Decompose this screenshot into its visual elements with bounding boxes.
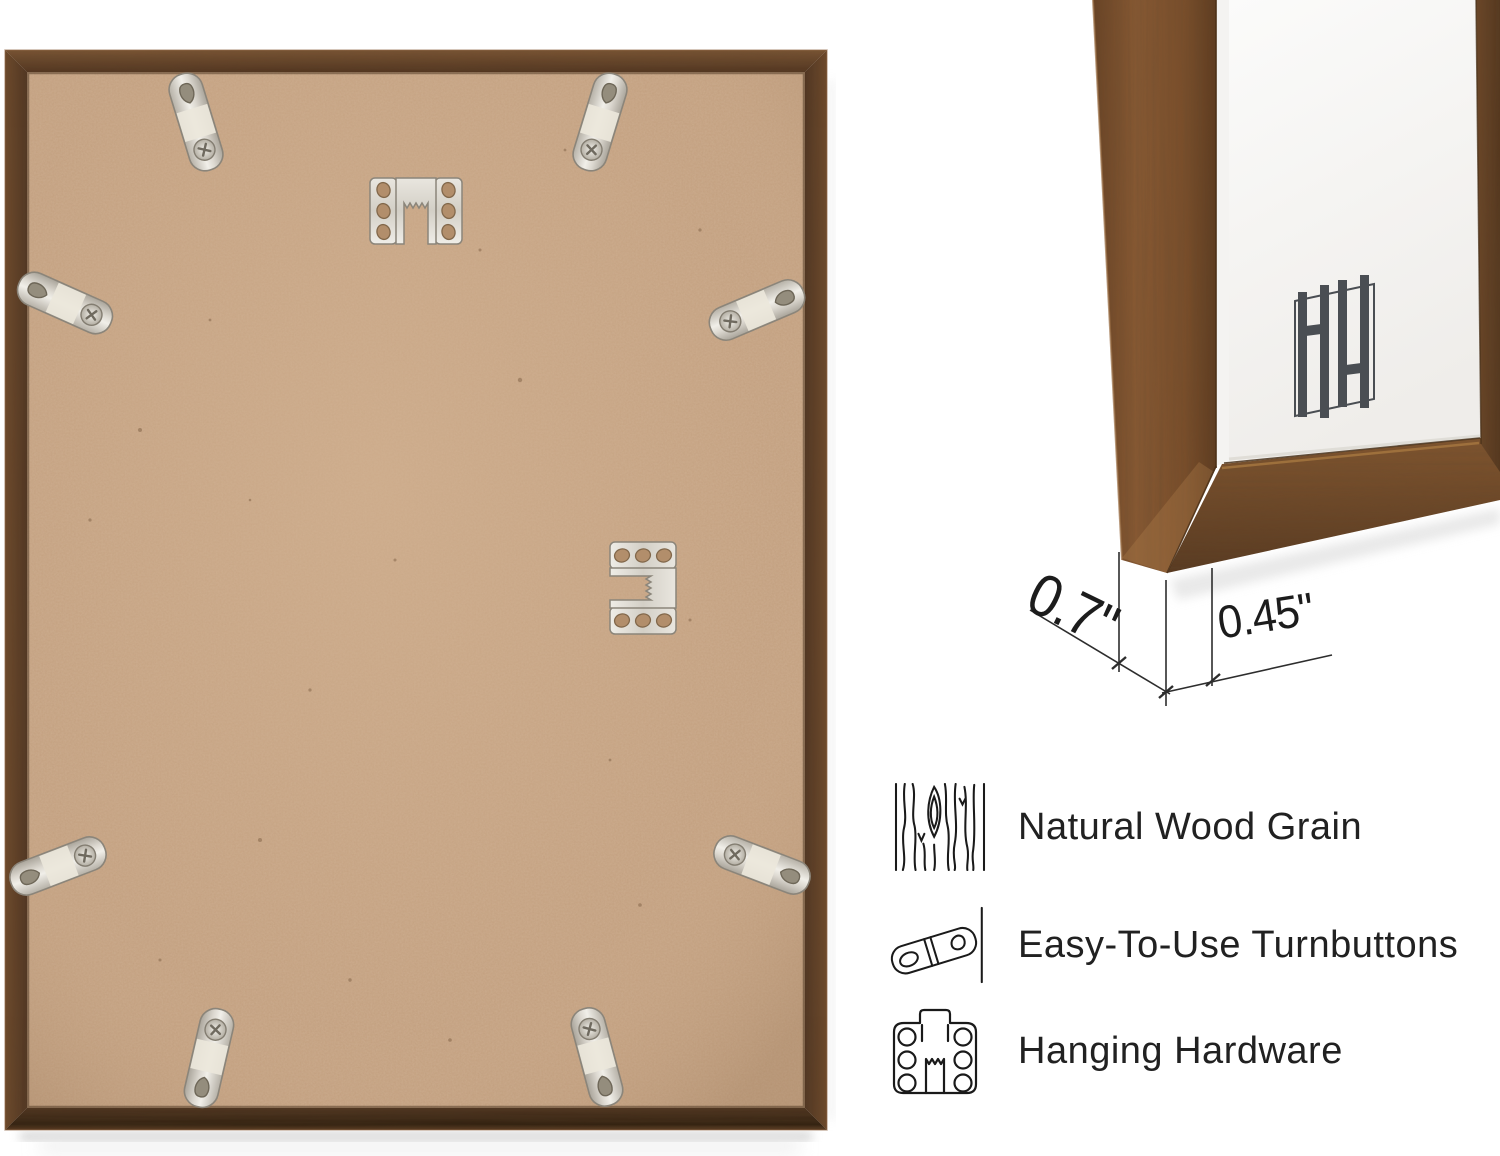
wood-grain-icon [888, 781, 992, 873]
feature-row: Natural Wood Grain [888, 781, 1362, 873]
product-image: 0.7" 0.45" Natural Wood Grain [0, 0, 1500, 1156]
hanging-hardware-icon [888, 1005, 992, 1097]
mat-board [1229, 0, 1481, 461]
feature-row: Hanging Hardware [888, 1005, 1343, 1097]
feature-label: Easy-To-Use Turnbuttons [1018, 924, 1458, 967]
turnbutton-icon [888, 899, 992, 991]
glass-edge [1216, 0, 1229, 466]
feature-label: Hanging Hardware [1018, 1030, 1343, 1073]
feature-row: Easy-To-Use Turnbuttons [888, 899, 1458, 991]
backing-board [27, 72, 805, 1108]
closeup-wood-bar [1093, 0, 1218, 575]
frame-back-photo [5, 50, 835, 1154]
feature-label: Natural Wood Grain [1018, 806, 1362, 849]
